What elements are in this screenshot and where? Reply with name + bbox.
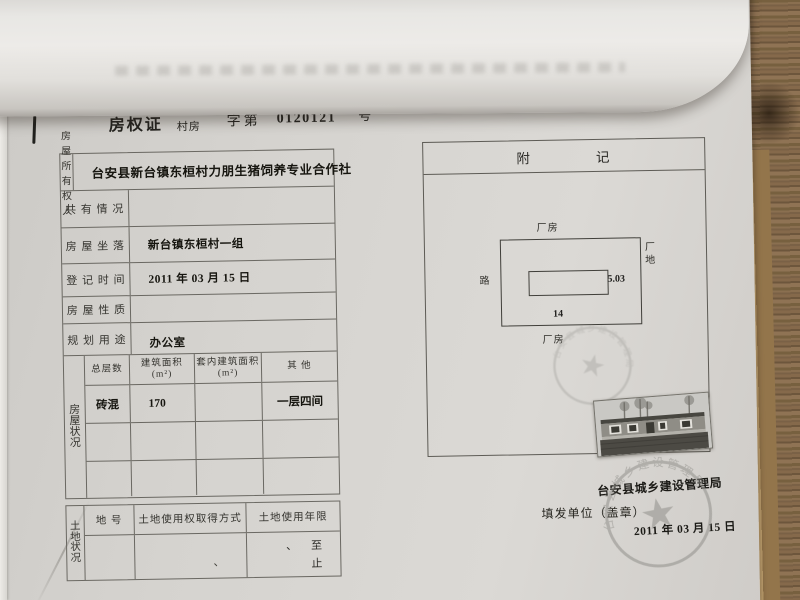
house-status-section: 房屋状况 总层数 建筑面积 (m²) 套 xyxy=(64,352,339,499)
plot-building-footprint xyxy=(528,270,608,296)
house-status-empty-row xyxy=(86,420,339,462)
cell-acquisition-method: 、 xyxy=(135,533,248,579)
term-end-label: 止 xyxy=(311,555,322,571)
section-label-vertical: 房屋状况 xyxy=(64,356,87,498)
ink-bleed-through xyxy=(115,62,625,76)
plot-diagram: 厂房 厂房 路 厂地 5.03 14 台安县城乡建设管理局 xyxy=(424,170,710,456)
form-row-owner: 房屋所有权人 台安县新台镇东桓村力朋生猪饲养专业合作社 xyxy=(60,150,334,192)
cell-use-term: 、 至 止 xyxy=(247,532,341,578)
term-to-label: 至 xyxy=(311,537,322,553)
column-header: 总层数 xyxy=(85,355,130,385)
cell-other: 一层四间 xyxy=(262,382,338,420)
doc-category-label: 村房 xyxy=(177,118,201,134)
stamp-text: 台安县城乡建设管理局 xyxy=(590,446,713,532)
dimension-width: 14 xyxy=(553,309,563,320)
form-row-planned-use: 规 划 用 途 办公室 xyxy=(63,320,337,357)
cell-inner-area xyxy=(195,383,263,421)
form-row-location: 房 屋 坐 落 新台镇东桓村一组 xyxy=(62,224,336,265)
house-status-header-row: 总层数 建筑面积 (m²) 套内建筑面积 (m²) xyxy=(85,352,337,386)
pen-mark: 、 xyxy=(286,537,297,553)
column-header: 土地使用权取得方式 xyxy=(134,503,246,534)
column-header: 其 他 xyxy=(262,352,337,382)
plot-label-factory-top: 厂房 xyxy=(536,219,558,234)
house-status-empty-row xyxy=(87,458,340,497)
column-header: 套内建筑面积 (m²) xyxy=(195,353,262,383)
official-stamp: 台安县城乡建设管理局 xyxy=(582,438,734,590)
field-value xyxy=(129,187,335,227)
field-label: 登 记 时 间 xyxy=(62,263,131,296)
section-label-vertical: 土地状况 xyxy=(66,506,85,580)
field-value: 台安县新台镇东桓村力朋生猪饲养专业合作社 xyxy=(73,149,352,190)
cell-area: 170 xyxy=(130,384,196,422)
plot-label-road: 路 xyxy=(479,272,490,287)
field-value: 新台镇东桓村一组 xyxy=(130,224,336,263)
stamp-star-icon xyxy=(579,352,606,378)
field-label: 共 有 情 况 xyxy=(61,190,130,227)
cell-plot-number xyxy=(85,535,136,580)
land-status-header-row: 地 号 土地使用权取得方式 土地使用年限 xyxy=(84,502,339,536)
dimension-height: 5.03 xyxy=(607,274,625,285)
field-label: 规 划 用 途 xyxy=(63,323,132,355)
field-label: 房 屋 坐 落 xyxy=(62,227,131,263)
field-label: 房 屋 性 质 xyxy=(63,296,131,323)
appendix-title: 附 记 xyxy=(423,138,705,175)
column-header: 地 号 xyxy=(84,505,134,535)
field-label: 房屋所有权人 xyxy=(60,154,74,190)
land-status-data-row: 、 、 至 止 xyxy=(85,532,341,580)
form-row-co-ownership: 共 有 情 况 xyxy=(61,187,335,229)
field-value: 2011 年 03 月 15 日 xyxy=(130,260,336,296)
plot-label-factory-bottom: 厂房 xyxy=(542,331,564,346)
photographed-document-scene: 房权证 村房 字第 0120121 号 房屋所有权人 台安县新台镇东桓村力朋生猪… xyxy=(0,0,800,600)
main-form: 房屋所有权人 台安县新台镇东桓村力朋生猪饲养专业合作社 共 有 情 况 房 屋 … xyxy=(59,149,341,582)
pen-mark: 、 xyxy=(213,554,224,570)
curled-page xyxy=(0,0,749,117)
field-value xyxy=(131,293,336,323)
land-status-section: 土地状况 地 号 土地使用权取得方式 土地使用年限 、 xyxy=(65,501,341,582)
column-header: 土地使用年限 xyxy=(246,502,339,533)
pen-mark xyxy=(32,116,36,144)
house-status-data-row: 砖混 170 一层四间 xyxy=(85,382,338,424)
cell-structure: 砖混 xyxy=(85,385,131,423)
column-header: 建筑面积 (m²) xyxy=(130,354,195,384)
plot-label-yard: 厂地 xyxy=(645,241,657,267)
appendix-box: 附 记 厂房 厂房 路 厂地 5.03 14 台安县城乡建设管理局 xyxy=(422,137,710,457)
svg-text:台安县城乡建设管理局: 台安县城乡建设管理局 xyxy=(590,446,713,532)
form-row-registration-date: 登 记 时 间 2011 年 03 月 15 日 xyxy=(62,260,336,298)
field-value: 办公室 xyxy=(131,320,337,355)
stamp-star-icon xyxy=(640,495,677,530)
